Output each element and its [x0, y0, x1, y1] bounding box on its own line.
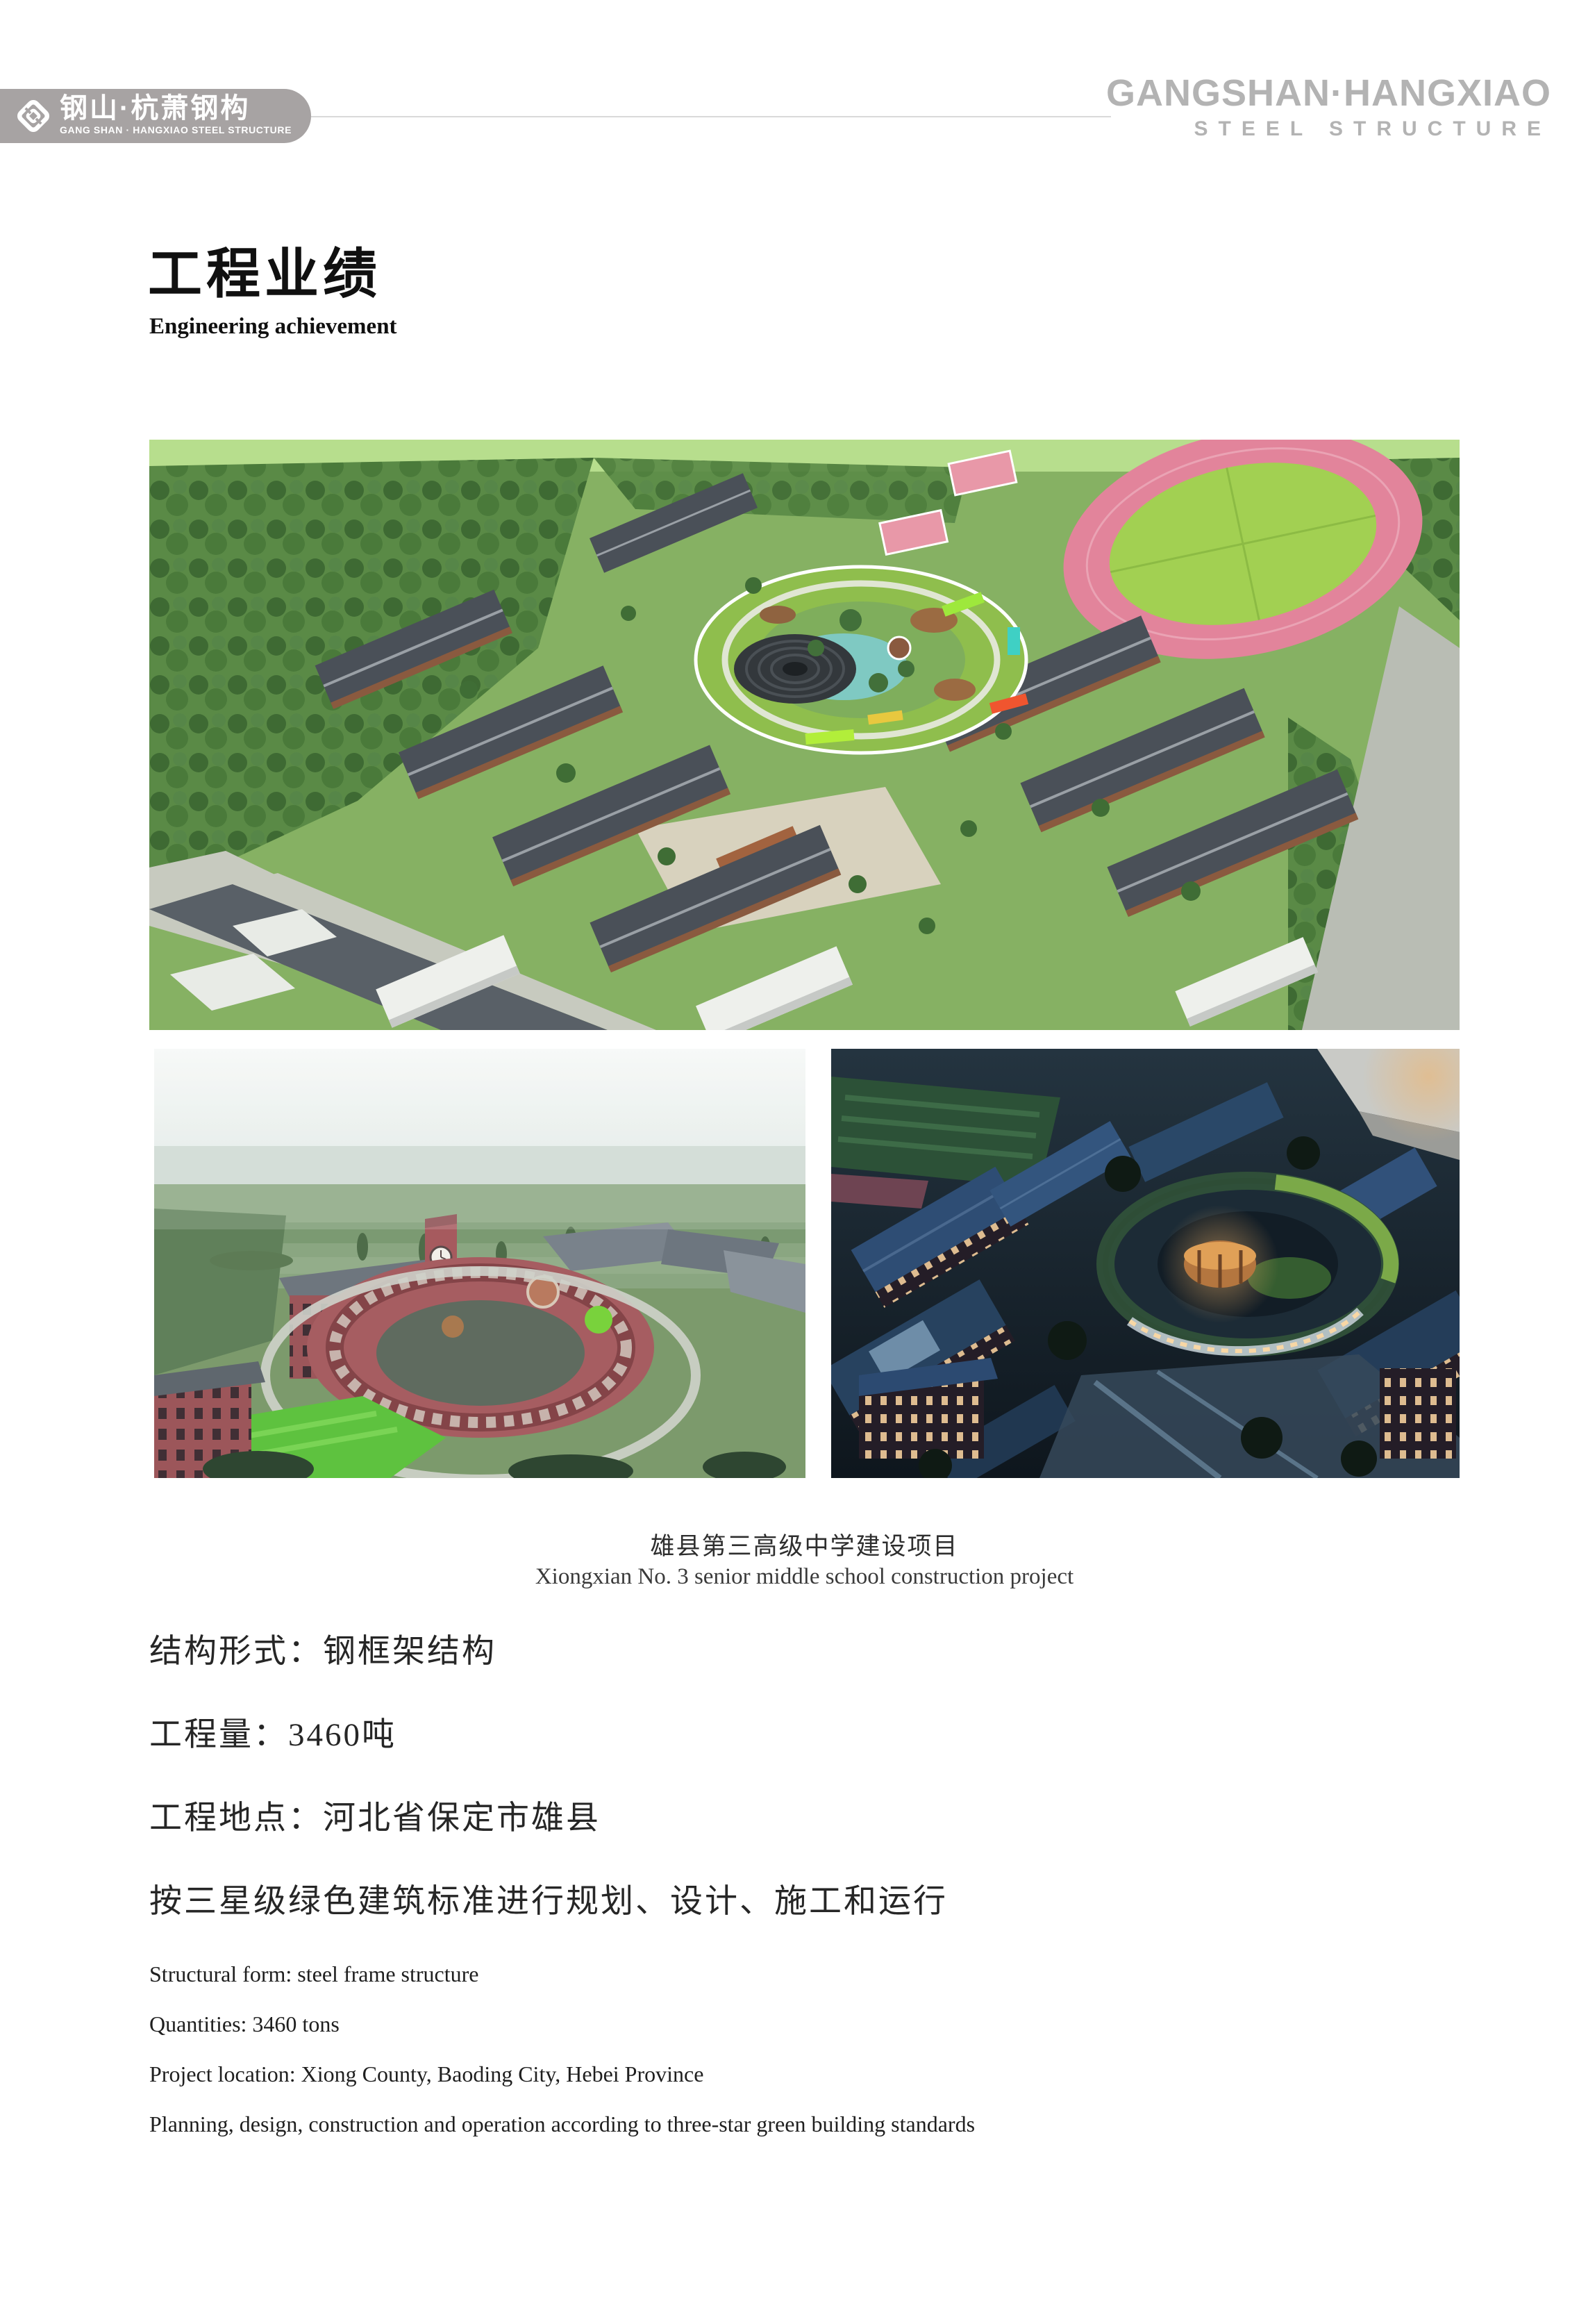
- detail-green-standard-zh: 按三星级绿色建筑标准进行规划、设计、施工和运行: [149, 1874, 948, 1922]
- logo-text: 钢山·杭萧钢构 GANG SHAN · HANGXIAO STEEL STRUC…: [60, 93, 303, 136]
- logo-zh: 钢山·杭萧钢构: [60, 93, 303, 124]
- caption-en: Xiongxian No. 3 senior middle school con…: [149, 1564, 1460, 1590]
- brand-name: GANGSHAN·HANGXIAO: [1106, 72, 1551, 114]
- detail-green-standard-en: Planning, design, construction and opera…: [149, 2107, 975, 2141]
- header-rule: [311, 116, 1111, 117]
- night-photo: [831, 1049, 1460, 1478]
- caption-zh: 雄县第三高级中学建设项目: [149, 1527, 1460, 1562]
- detail-structural-form-en: Structural form: steel frame structure: [149, 1957, 478, 1991]
- detail-quantities-en: Quantities: 3460 tons: [149, 2007, 340, 2041]
- brand-subname: STEEL STRUCTURE: [1106, 114, 1551, 144]
- logo-banner: 钢山·杭萧钢构 GANG SHAN · HANGXIAO STEEL STRUC…: [0, 89, 311, 143]
- logo-icon: [14, 97, 53, 135]
- logo-en: GANG SHAN · HANGXIAO STEEL STRUCTURE: [60, 124, 303, 136]
- page-title: 工程业绩: [148, 244, 381, 304]
- detail-location-zh: 工程地点：河北省保定市雄县: [149, 1791, 601, 1839]
- day-photo: [154, 1049, 805, 1478]
- brand-right: GANGSHAN·HANGXIAO STEEL STRUCTURE: [1106, 72, 1551, 144]
- brochure-page: 钢山·杭萧钢构 GANG SHAN · HANGXIAO STEEL STRUC…: [0, 0, 1579, 2324]
- detail-location-en: Project location: Xiong County, Baoding …: [149, 2057, 703, 2091]
- page-subtitle: Engineering achievement: [149, 313, 397, 340]
- detail-quantities-zh: 工程量：3460吨: [149, 1707, 396, 1755]
- detail-structural-form-zh: 结构形式：钢框架结构: [149, 1624, 496, 1672]
- main-render-image: [149, 440, 1460, 1030]
